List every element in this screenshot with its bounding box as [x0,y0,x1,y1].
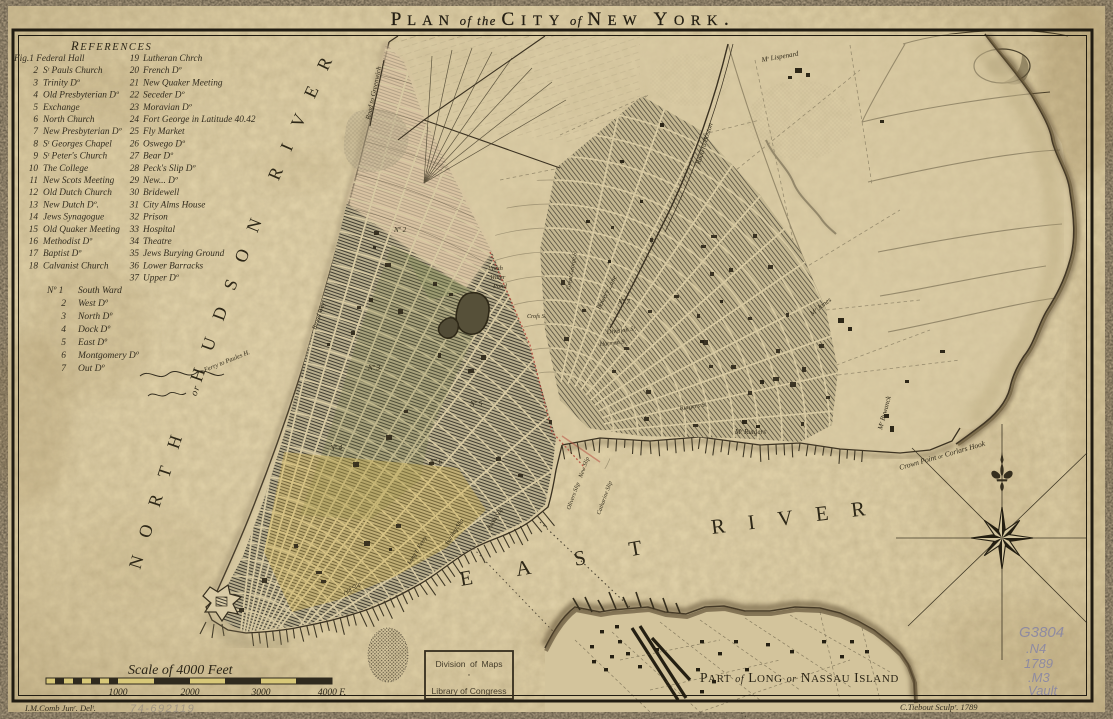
svg-text:Montgomery Dº: Montgomery Dº [77,351,140,361]
svg-text:17: 17 [29,249,39,259]
svg-text:Nº 6: Nº 6 [429,458,443,466]
svg-text:New Dutch Dº.: New Dutch Dº. [42,200,99,210]
svg-text:Lutheran Chrch: Lutheran Chrch [142,54,203,64]
svg-text:18: 18 [29,261,39,271]
svg-text:Dock Dº: Dock Dº [77,325,111,335]
svg-text:32: 32 [129,213,140,223]
svg-text:Fort George in Latitude 40.42: Fort George in Latitude 40.42 [142,115,256,125]
svg-text:New Presbyterian Dº: New Presbyterian Dº [42,127,123,137]
svg-text:14: 14 [29,213,39,223]
svg-text:6: 6 [61,351,66,361]
svg-text:Moravian Dº: Moravian Dº [142,103,193,113]
svg-text:Seceder Dº: Seceder Dº [143,91,185,101]
svg-text:Theatre: Theatre [143,237,172,247]
svg-text:*: * [468,674,470,680]
svg-text:French Dº: French Dº [142,66,183,76]
svg-text:Mʳ Rutgers: Mʳ Rutgers [734,428,766,436]
svg-text:I.M.Comb Junʳ. Delᵗ.: I.M.Comb Junʳ. Delᵗ. [24,703,96,713]
svg-text:15: 15 [29,225,39,235]
svg-text:Trinity Dº: Trinity Dº [43,78,81,88]
svg-text:35: 35 [129,249,140,259]
svg-text:South Ward: South Ward [78,286,122,296]
svg-text:Prison: Prison [142,213,168,223]
svg-text:2: 2 [33,66,38,76]
svg-text:Out Dº: Out Dº [78,364,105,374]
svg-text:The College: The College [43,164,88,174]
svg-text:Pond: Pond [492,283,507,290]
svg-text:New Scots Meeting: New Scots Meeting [42,176,115,186]
svg-text:2: 2 [61,299,66,309]
svg-text:31: 31 [129,200,139,210]
svg-text:4: 4 [33,91,38,101]
svg-text:6: 6 [33,115,38,125]
svg-text:2000: 2000 [181,688,200,698]
svg-text:Nº 2: Nº 2 [393,226,407,234]
svg-text:22: 22 [130,91,140,101]
svg-text:Calvanist Church: Calvanist Church [43,261,109,271]
svg-text:Vault: Vault [1028,683,1059,698]
svg-text:Nº 4: Nº 4 [329,444,343,452]
svg-text:Old Quaker Meeting: Old Quaker Meeting [43,225,120,235]
svg-text:8: 8 [33,139,38,149]
svg-text:Old Dutch Church: Old Dutch Church [43,188,112,198]
svg-text:New Quaker Meeting: New Quaker Meeting [142,78,223,88]
svg-text:Fly Market: Fly Market [142,127,185,137]
svg-text:1000: 1000 [109,688,128,698]
svg-text:74-692119: 74-692119 [130,703,195,715]
svg-text:Hospital: Hospital [142,225,175,235]
svg-text:Library of Congress: Library of Congress [432,686,507,696]
svg-text:REFERENCES: REFERENCES [70,39,152,53]
svg-text:13: 13 [29,200,39,210]
svg-text:28: 28 [130,164,140,174]
svg-text:16: 16 [29,237,39,247]
svg-text:City Alms House: City Alms House [143,200,205,210]
svg-text:Fresh: Fresh [487,265,503,272]
svg-text:4000 F.: 4000 F. [318,688,346,698]
svg-text:Division of Maps: Division of Maps [435,659,502,669]
svg-text:G3804: G3804 [1019,624,1064,641]
svg-text:Scale of 4000 Feet: Scale of 4000 Feet [128,663,234,678]
svg-text:Jews Synagogue: Jews Synagogue [43,213,104,223]
svg-text:Fig.1 Federal Hall: Fig.1 Federal Hall [13,54,85,64]
svg-text:19: 19 [130,54,140,64]
svg-text:West Dº: West Dº [78,299,109,309]
svg-text:Lower Barracks: Lower Barracks [142,261,204,271]
svg-text:1789: 1789 [1024,656,1053,671]
svg-text:Bridewell: Bridewell [143,188,180,198]
svg-text:Sᵗ Georges Chapel: Sᵗ Georges Chapel [43,139,112,149]
svg-text:33: 33 [129,225,140,235]
svg-text:36: 36 [129,261,140,271]
svg-text:PLAN of the CITY of NEW: PLAN of the CITY of NEW YORK. [391,9,736,30]
svg-text:34: 34 [129,237,140,247]
svg-text:North Dº: North Dº [77,312,113,322]
svg-text:Nº 3: Nº 3 [367,364,381,372]
svg-text:C.Tiebout Sculpʳ. 1789: C.Tiebout Sculpʳ. 1789 [900,702,978,712]
svg-text:Crofs S.: Crofs S. [527,313,546,320]
svg-text:.N4: .N4 [1026,641,1046,656]
svg-text:5: 5 [61,338,66,348]
svg-text:Peck's Slip Dº: Peck's Slip Dº [142,164,196,174]
svg-text:27: 27 [130,152,140,162]
svg-text:Bear Dº: Bear Dº [143,152,174,162]
svg-text:3000: 3000 [251,688,271,698]
svg-text:Upper Dº: Upper Dº [143,274,180,284]
svg-text:PART of LONG or NASSAU ISLAND: PART of LONG or NASSAU ISLAND [700,670,899,685]
svg-text:37: 37 [129,274,140,284]
svg-text:12: 12 [29,188,39,198]
svg-text:5: 5 [33,103,38,113]
svg-text:11: 11 [29,176,38,186]
svg-text:Nº 7: Nº 7 [617,298,631,306]
svg-text:7: 7 [33,127,38,137]
svg-text:24: 24 [130,115,140,125]
svg-text:Methodist Dº: Methodist Dº [42,237,93,247]
svg-text:10: 10 [29,164,39,174]
svg-text:Exchange: Exchange [42,103,80,113]
svg-text:30: 30 [129,188,140,198]
svg-text:East Dº: East Dº [77,338,108,348]
svg-text:Sᵗ Peter's Church: Sᵗ Peter's Church [43,152,107,162]
svg-text:New... Dº: New... Dº [142,176,179,186]
svg-text:Sᵗ Pauls Church: Sᵗ Pauls Church [43,66,103,76]
svg-text:25: 25 [130,127,140,137]
svg-text:20: 20 [130,66,140,76]
svg-text:29: 29 [130,176,140,186]
svg-text:Baptist Dº: Baptist Dº [43,249,82,259]
svg-text:4: 4 [61,325,66,335]
svg-text:9: 9 [33,152,38,162]
svg-text:3: 3 [60,312,66,322]
svg-text:Nº 1: Nº 1 [46,286,63,296]
svg-text:North Church: North Church [42,115,95,125]
svg-text:21: 21 [130,78,139,88]
svg-text:Jews Burying Ground: Jews Burying Ground [143,249,225,259]
svg-text:3: 3 [32,78,38,88]
svg-text:Oswego Dº: Oswego Dº [143,139,186,149]
svg-text:Old Presbyterian Dº: Old Presbyterian Dº [43,91,120,101]
svg-text:26: 26 [130,139,140,149]
svg-text:Water: Water [490,274,506,281]
svg-text:Nº 5: Nº 5 [469,400,483,408]
svg-text:23: 23 [130,103,140,113]
